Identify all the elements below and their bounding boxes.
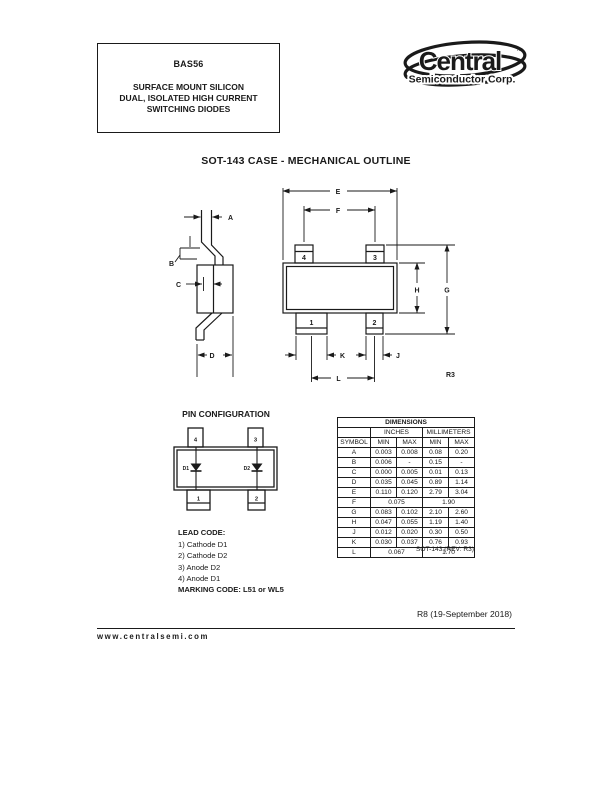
dimension-cell: 2.79 — [423, 488, 449, 498]
dimension-row: J0.0120.0200.300.50 — [338, 528, 475, 538]
inches-header: INCHES — [371, 428, 423, 438]
dimension-cell: F — [338, 498, 371, 508]
top-view-pin3-number: 3 — [373, 255, 377, 262]
dimensions-table-body: DIMENSIONS INCHES MILLIMETERS SYMBOL MIN… — [338, 418, 475, 558]
dimension-cell: 0.50 — [449, 528, 475, 538]
top-view-pin4-number: 4 — [302, 255, 306, 262]
revision-date: R8 (19-September 2018) — [112, 609, 512, 619]
dimensions-title-row: DIMENSIONS — [338, 418, 475, 428]
dimension-cell: 1.40 — [449, 518, 475, 528]
dimension-cell: 0.13 — [449, 468, 475, 478]
dimension-cell: - — [397, 458, 423, 468]
dimension-cell: 0.003 — [371, 448, 397, 458]
section-title: SOT-143 CASE - MECHANICAL OUTLINE — [0, 155, 612, 167]
diode2-label: D2 — [244, 466, 251, 472]
side-view-dimension-lines — [175, 217, 233, 377]
dimension-cell: H — [338, 518, 371, 528]
website-link[interactable]: www.centralsemi.com — [97, 632, 209, 641]
lead-code-item: 2) Cathode D2 — [178, 550, 227, 562]
lead-code-block: LEAD CODE: 1) Cathode D1 2) Cathode D2 3… — [178, 527, 227, 585]
mechanical-outline-drawing: A B C D — [160, 185, 470, 397]
dimension-row: F0.0751.90 — [338, 498, 475, 508]
dimension-cell: 0.120 — [397, 488, 423, 498]
dimension-cell: 0.047 — [371, 518, 397, 528]
dimensions-table: DIMENSIONS INCHES MILLIMETERS SYMBOL MIN… — [337, 417, 475, 558]
dimension-row: C0.0000.0050.010.13 — [338, 468, 475, 478]
dim-label-g: G — [444, 288, 450, 295]
pin-config-pin1-number: 1 — [197, 497, 201, 503]
dimension-row: E0.1100.1202.793.04 — [338, 488, 475, 498]
dimension-row: D0.0350.0450.891.14 — [338, 478, 475, 488]
dimensions-header-row: SYMBOL MIN MAX MIN MAX — [338, 438, 475, 448]
dimension-cell: G — [338, 508, 371, 518]
max-header: MAX — [449, 438, 475, 448]
top-view-pin1-number: 1 — [310, 320, 314, 327]
dimension-cell: 1.19 — [423, 518, 449, 528]
dimension-row: A0.0030.0080.080.20 — [338, 448, 475, 458]
part-number: BAS56 — [98, 59, 279, 69]
min-header: MIN — [371, 438, 397, 448]
dimension-cell: 1.14 — [449, 478, 475, 488]
side-view-outline — [196, 210, 233, 340]
dim-label-d: D — [209, 353, 214, 360]
millimeters-header: MILLIMETERS — [423, 428, 475, 438]
dimension-cell: 0.005 — [397, 468, 423, 478]
dimension-cell: 0.08 — [423, 448, 449, 458]
dimension-cell: 0.15 — [423, 458, 449, 468]
dim-label-f: F — [336, 208, 341, 215]
pin-config-pin2-number: 2 — [255, 497, 258, 503]
table-footnote: SOT-143 (REV: R3) — [337, 546, 474, 553]
dim-label-k: K — [340, 353, 345, 360]
dimension-cell: - — [449, 458, 475, 468]
dim-label-j: J — [396, 353, 400, 360]
dim-label-c: C — [176, 282, 181, 289]
dimension-cell: E — [338, 488, 371, 498]
dimension-cell: 1.90 — [423, 498, 475, 508]
pin-config-outline — [174, 428, 277, 510]
dimension-cell: 2.10 — [423, 508, 449, 518]
symbol-header: SYMBOL — [338, 438, 371, 448]
dimensions-table-title: DIMENSIONS — [338, 418, 475, 428]
dimension-cell: 0.035 — [371, 478, 397, 488]
dimension-cell: 0.020 — [397, 528, 423, 538]
description-line: SWITCHING DIODES — [98, 104, 279, 115]
dimension-cell: 2.60 — [449, 508, 475, 518]
top-view-pin2-number: 2 — [373, 320, 377, 327]
dim-label-l: L — [336, 376, 341, 383]
dimension-cell: B — [338, 458, 371, 468]
dim-label-a: A — [228, 215, 233, 222]
dim-label-h: H — [414, 288, 419, 295]
dimension-cell: 0.055 — [397, 518, 423, 528]
pin-configuration-drawing: 4 3 1 2 D1 D2 — [150, 424, 302, 518]
dimension-row: G0.0830.1022.102.60 — [338, 508, 475, 518]
dimension-cell: A — [338, 448, 371, 458]
dimension-cell: 0.01 — [423, 468, 449, 478]
dimension-cell: 0.000 — [371, 468, 397, 478]
dimension-row: H0.0470.0551.191.40 — [338, 518, 475, 528]
footer-divider — [97, 628, 515, 629]
logo-brand: Central — [419, 46, 502, 76]
dimension-cell: 0.102 — [397, 508, 423, 518]
empty-cell — [338, 428, 371, 438]
marking-code: MARKING CODE: L51 or WL5 — [178, 585, 284, 594]
dimension-cell: D — [338, 478, 371, 488]
central-logo-graphic: Semiconductor Corp. Central ™ — [402, 39, 528, 91]
dimension-cell: 0.20 — [449, 448, 475, 458]
dimension-cell: 0.008 — [397, 448, 423, 458]
dimension-row: B0.006-0.15- — [338, 458, 475, 468]
header-box: BAS56 SURFACE MOUNT SILICON DUAL, ISOLAT… — [97, 43, 280, 133]
dimension-cell: J — [338, 528, 371, 538]
dimension-cell: 0.075 — [371, 498, 423, 508]
company-logo: Semiconductor Corp. Central ™ — [402, 39, 528, 91]
lead-code-item: 3) Anode D2 — [178, 562, 227, 574]
datasheet-page: BAS56 SURFACE MOUNT SILICON DUAL, ISOLAT… — [0, 0, 612, 792]
pin-configuration-title: PIN CONFIGURATION — [150, 409, 302, 419]
pin-config-pin3-number: 3 — [254, 438, 258, 444]
description-line: DUAL, ISOLATED HIGH CURRENT — [98, 93, 279, 104]
diode-symbols — [191, 447, 263, 490]
dimension-cell: 3.04 — [449, 488, 475, 498]
min-header: MIN — [423, 438, 449, 448]
dimension-cell: C — [338, 468, 371, 478]
lead-code-item: 4) Anode D1 — [178, 573, 227, 585]
top-view-outline — [283, 245, 397, 334]
top-view-dimension-lines — [283, 188, 455, 382]
pin-config-pin4-number: 4 — [194, 438, 198, 444]
dimension-cell: 0.006 — [371, 458, 397, 468]
dim-label-e: E — [336, 189, 341, 196]
lead-code-title: LEAD CODE: — [178, 527, 227, 539]
description-line: SURFACE MOUNT SILICON — [98, 82, 279, 93]
dimension-cell: 0.30 — [423, 528, 449, 538]
lead-code-item: 1) Cathode D1 — [178, 539, 227, 551]
dimension-cell: 0.012 — [371, 528, 397, 538]
dimension-cell: 0.89 — [423, 478, 449, 488]
dimensions-units-row: INCHES MILLIMETERS — [338, 428, 475, 438]
dim-label-b: B — [169, 261, 174, 268]
max-header: MAX — [397, 438, 423, 448]
drawing-revision: R3 — [446, 372, 455, 379]
trademark-symbol: ™ — [516, 48, 523, 55]
diode1-label: D1 — [183, 466, 190, 472]
dimension-cell: 0.083 — [371, 508, 397, 518]
dimension-cell: 0.110 — [371, 488, 397, 498]
dimension-cell: 0.045 — [397, 478, 423, 488]
